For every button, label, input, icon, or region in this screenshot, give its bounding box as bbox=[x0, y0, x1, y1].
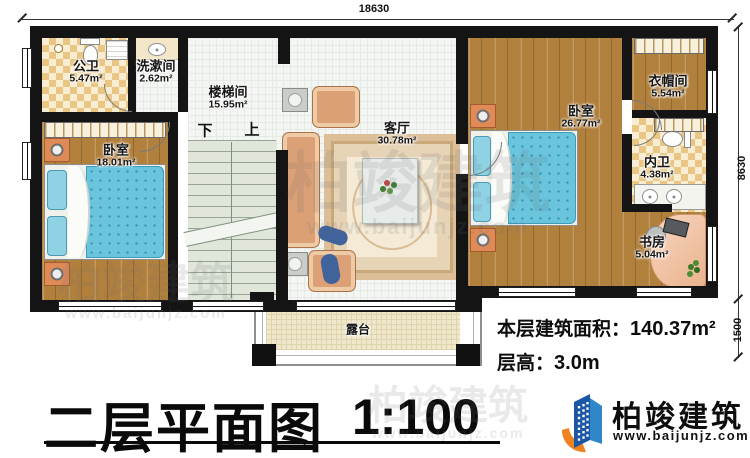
room-name: 楼梯间 bbox=[208, 85, 247, 99]
room-label-ensuite-bath: 内卫 4.38m² bbox=[640, 155, 673, 180]
window bbox=[707, 226, 717, 282]
title-underline bbox=[44, 441, 500, 444]
drawing-scale: 1:100 bbox=[352, 388, 480, 446]
wall-segment bbox=[178, 38, 188, 112]
wall-segment bbox=[168, 112, 178, 300]
window bbox=[296, 301, 456, 311]
room-label-public-bath: 公卫 5.47m² bbox=[69, 59, 102, 84]
room-area: 4.38m² bbox=[640, 169, 673, 180]
toilet-tank-icon bbox=[684, 130, 691, 148]
room-name: 卧室 bbox=[103, 143, 129, 157]
wall-segment bbox=[42, 112, 178, 122]
room-area: 30.78m² bbox=[377, 135, 416, 146]
wall-segment bbox=[456, 174, 468, 300]
window bbox=[22, 142, 32, 180]
wardrobe-hatch bbox=[634, 38, 704, 54]
wall-segment bbox=[460, 292, 482, 312]
window bbox=[636, 287, 692, 297]
floor-height-label: 层高： bbox=[497, 353, 554, 374]
room-area: 5.54m² bbox=[651, 88, 684, 99]
room-name: 公卫 bbox=[73, 59, 99, 73]
room-area: 26.77m² bbox=[561, 118, 600, 129]
floor-area-label: 本层建筑面积： bbox=[497, 319, 630, 340]
dimension-top-value: 18630 bbox=[359, 3, 390, 15]
wall-segment bbox=[456, 26, 468, 144]
floor-height-value: 3.0m bbox=[554, 352, 600, 374]
window bbox=[498, 287, 576, 297]
dimension-line-top bbox=[22, 19, 734, 20]
pillow-icon bbox=[47, 170, 67, 210]
nightstand-icon bbox=[470, 104, 496, 128]
coffee-table-icon bbox=[362, 158, 418, 224]
room-name: 衣帽间 bbox=[648, 74, 687, 88]
stair-up-label: 上 bbox=[244, 119, 259, 140]
floor-height-annotation: 层高：3.0m bbox=[497, 348, 600, 375]
window bbox=[192, 301, 264, 311]
bed-blanket bbox=[508, 132, 576, 224]
room-label-living-room: 客厅 30.78m² bbox=[377, 121, 416, 146]
stair-down-label: 下 bbox=[197, 120, 212, 141]
armchair-icon bbox=[312, 86, 360, 128]
floor-area-annotation: 本层建筑面积：140.37m² bbox=[497, 314, 716, 341]
toilet-tank-icon bbox=[80, 38, 100, 45]
wall-segment bbox=[276, 150, 288, 300]
stair-divider bbox=[231, 142, 232, 298]
room-name: 客厅 bbox=[384, 121, 410, 135]
window bbox=[58, 301, 162, 311]
room-name: 卧室 bbox=[568, 104, 594, 118]
room-area: 2.62m² bbox=[139, 73, 172, 84]
room-area: 15.95m² bbox=[208, 99, 247, 110]
dimension-right-lower-value: 1500 bbox=[732, 318, 744, 342]
nightstand-icon bbox=[44, 138, 70, 162]
bed-blanket bbox=[86, 166, 164, 258]
sink-icon bbox=[666, 189, 682, 204]
room-name: 洗漱间 bbox=[136, 59, 175, 73]
room-area: 18.01m² bbox=[96, 157, 135, 168]
dimension-tick bbox=[17, 13, 27, 23]
sink-icon bbox=[148, 43, 166, 56]
brand-logo-icon bbox=[556, 390, 608, 454]
lamp-icon bbox=[51, 144, 64, 157]
lamp-icon bbox=[477, 234, 490, 247]
window bbox=[22, 48, 32, 88]
pillow-icon bbox=[473, 182, 491, 222]
flower-icon bbox=[384, 180, 390, 186]
dimension-line-right bbox=[738, 26, 739, 358]
room-label-cloakroom: 衣帽间 5.54m² bbox=[648, 74, 687, 99]
room-label-study: 书房 5.04m² bbox=[635, 235, 668, 260]
shower-unit-icon bbox=[106, 40, 128, 60]
lamp-icon bbox=[51, 268, 64, 281]
page-title: 二层平面图 bbox=[44, 384, 324, 458]
room-area: 5.47m² bbox=[69, 73, 102, 84]
nightstand-icon bbox=[470, 228, 496, 252]
plant-icon bbox=[688, 264, 694, 270]
side-table-icon bbox=[282, 88, 308, 112]
room-name: 内卫 bbox=[644, 155, 670, 169]
floor-area-value: 140.37m² bbox=[630, 318, 716, 340]
sink-icon bbox=[642, 189, 658, 204]
nightstand-icon bbox=[44, 262, 70, 286]
terrace-post bbox=[456, 344, 480, 366]
room-label-washroom: 洗漱间 2.62m² bbox=[136, 59, 175, 84]
ceiling-lamp-icon bbox=[54, 44, 63, 53]
pillow-icon bbox=[47, 216, 67, 256]
floor-plan-canvas: 18630 8630 1500 下 上 bbox=[0, 0, 750, 458]
wall-segment bbox=[278, 26, 290, 64]
dimension-right-upper-value: 8630 bbox=[736, 156, 748, 180]
terrace-post bbox=[252, 344, 276, 366]
dimension-tick bbox=[727, 13, 737, 23]
brand-website: www.baijunjz.com bbox=[613, 428, 749, 443]
room-label-bedroom-master: 卧室 26.77m² bbox=[561, 104, 600, 129]
room-label-stairwell: 楼梯间 15.95m² bbox=[208, 85, 247, 110]
wall-segment bbox=[622, 38, 632, 100]
window bbox=[707, 70, 717, 114]
room-label-terrace: 露台 bbox=[346, 324, 370, 337]
room-area: 5.04m² bbox=[635, 249, 668, 260]
wall-segment bbox=[30, 26, 718, 38]
room-name: 书房 bbox=[639, 235, 665, 249]
room-name: 露台 bbox=[346, 324, 370, 337]
toilet-icon bbox=[662, 131, 683, 147]
room-label-bedroom-left: 卧室 18.01m² bbox=[96, 143, 135, 168]
wall-segment bbox=[622, 204, 672, 212]
wall-segment bbox=[622, 134, 632, 212]
lamp-icon bbox=[477, 110, 490, 123]
